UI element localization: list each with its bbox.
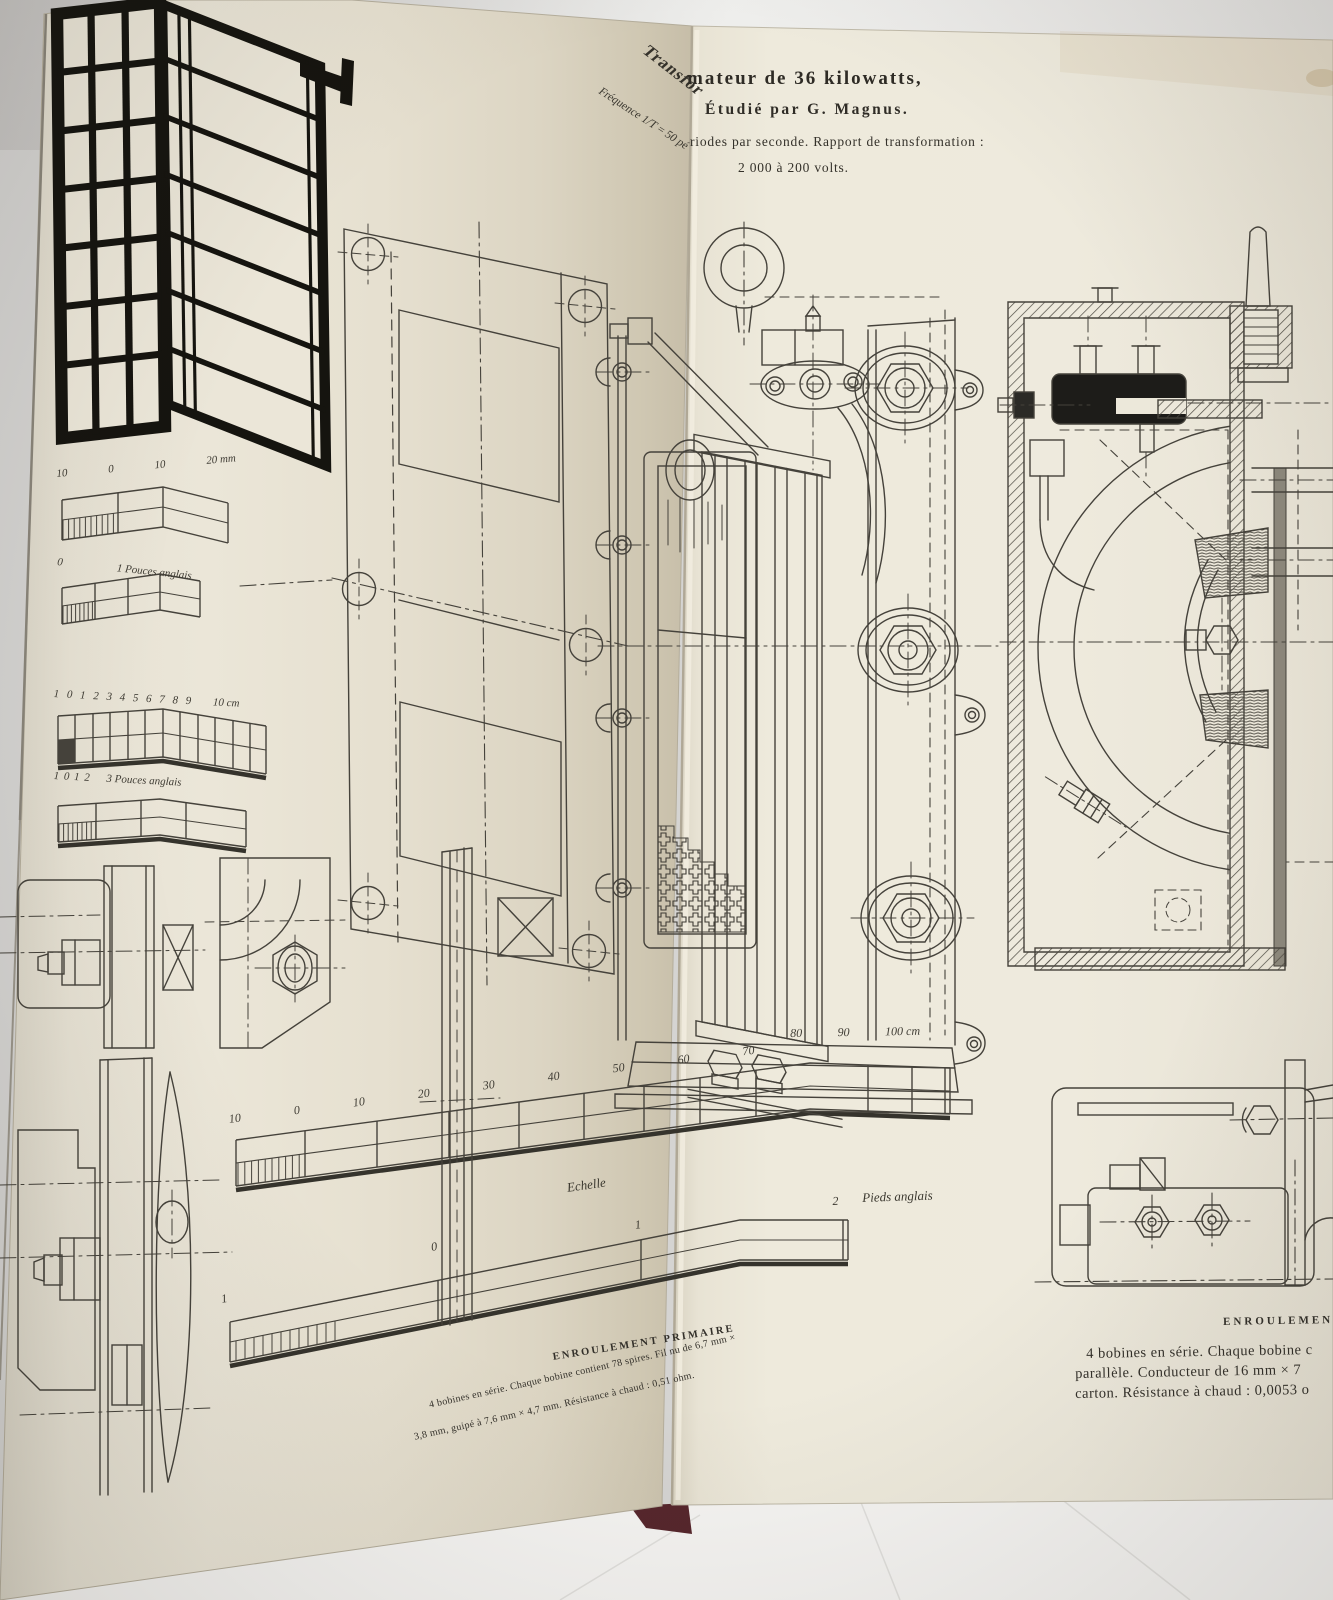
plate-title: mateur de 36 kilowatts, — [687, 68, 923, 90]
secondary-winding-heading: ENROULEMENT — [1223, 1314, 1333, 1328]
feet-scale-value: 2 — [832, 1194, 839, 1209]
plate-byline: Étudié par G. Magnus. — [705, 101, 909, 119]
core-front-face — [57, 2, 165, 438]
core-stack-drawing — [57, 2, 354, 466]
photo-of-engineering-plate: Transfor mateur de 36 kilowatts, Étudié … — [0, 0, 1333, 1600]
voltage-line: 2 000 à 200 volts. — [738, 160, 849, 176]
transformation-ratio-line: riodes par seconde. Rapport de transform… — [690, 134, 984, 150]
cm100-scale-right-labels: 80 90 100 cm — [790, 1024, 920, 1041]
feet-scale-unit: Pieds anglais — [862, 1188, 933, 1206]
